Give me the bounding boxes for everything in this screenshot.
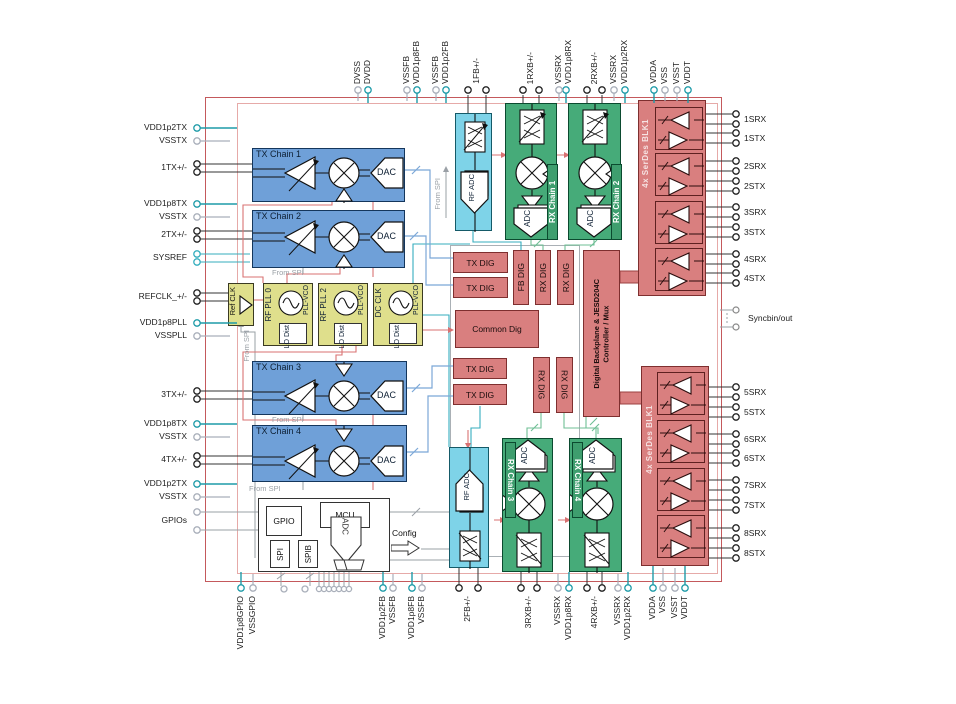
- block-diagram: TX Chain 1 DAC TX Chain 2 DAC: [0, 0, 956, 704]
- pin-terminals: [0, 0, 956, 704]
